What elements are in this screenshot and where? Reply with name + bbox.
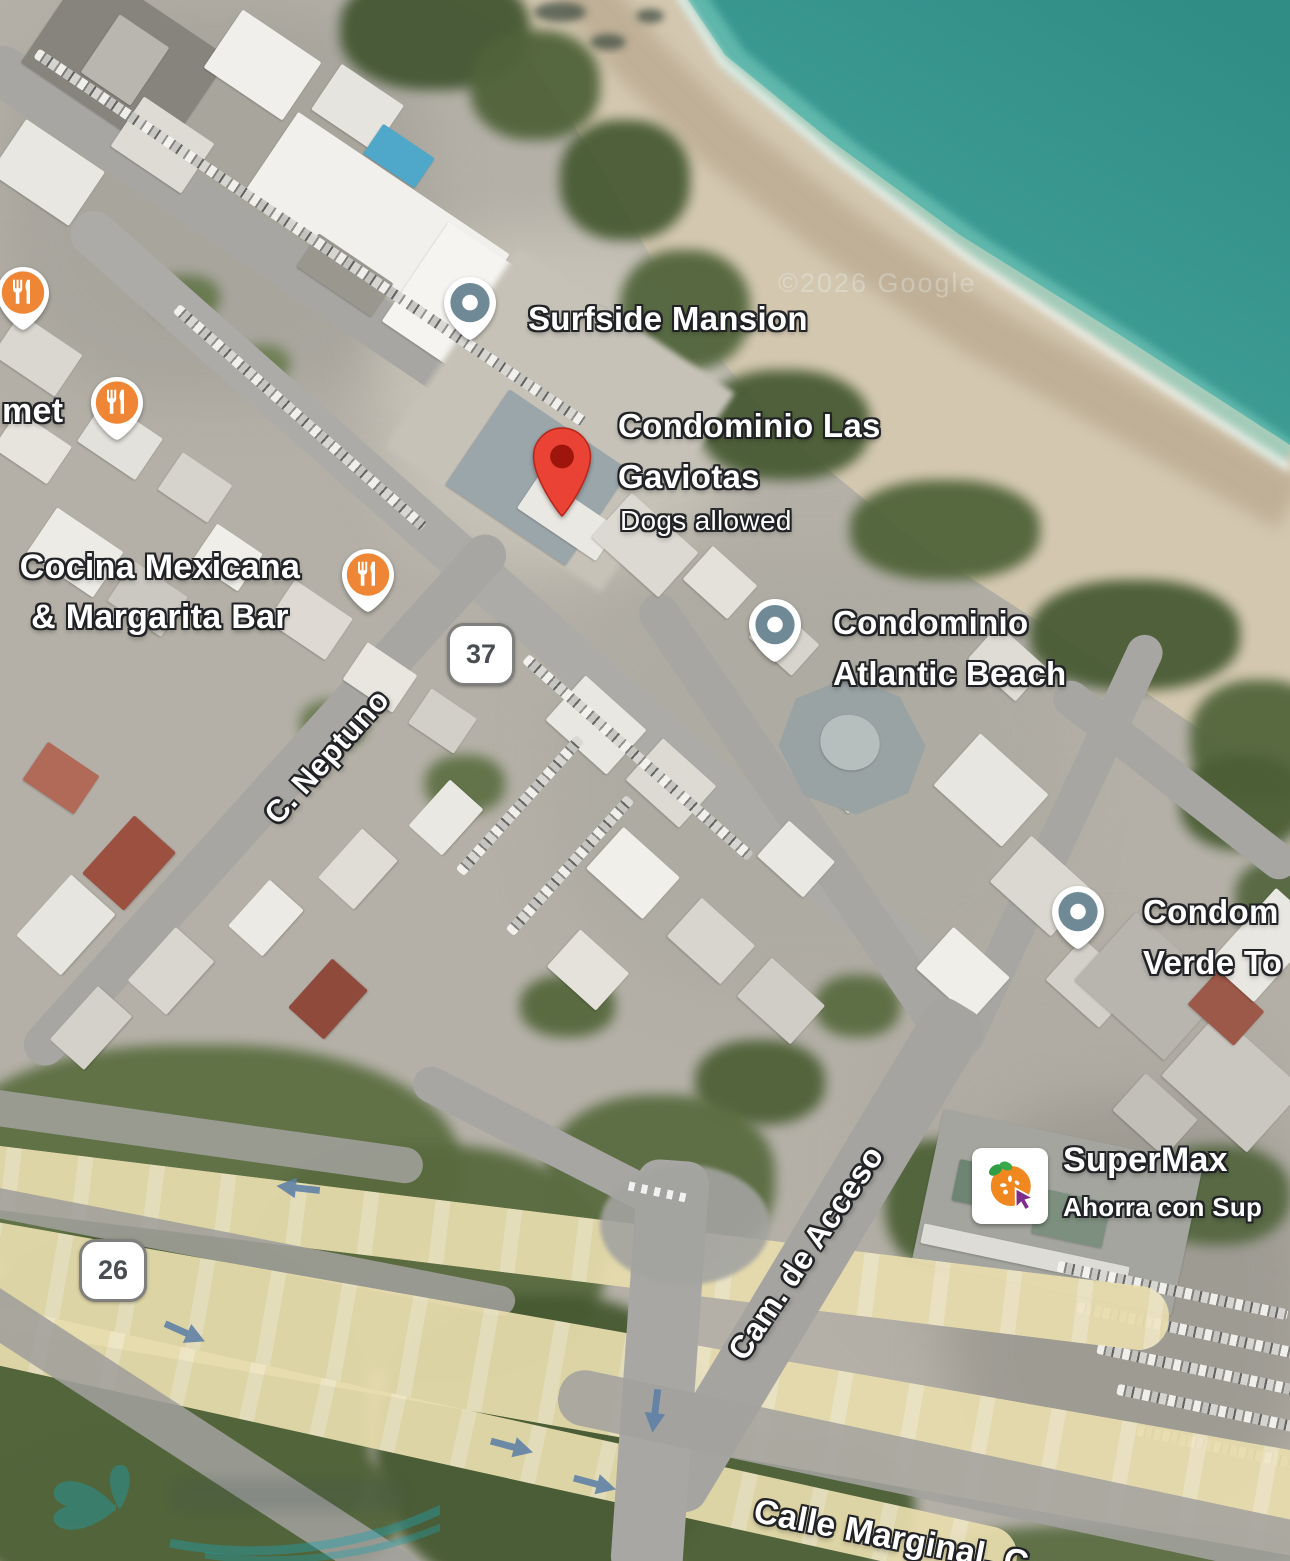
place-marker-icon[interactable]	[1050, 884, 1106, 950]
poi-label-cocina-mexicana[interactable]: Cocina Mexicana & Margarita Bar	[0, 542, 335, 642]
place-marker-icon[interactable]	[747, 597, 803, 663]
poi-label-surfside-mansion[interactable]: Surfside Mansion	[528, 293, 808, 344]
poi-label-gourmet[interactable]: met	[2, 386, 63, 437]
restaurant-icon[interactable]	[89, 375, 145, 441]
route-shield-26: 26	[79, 1239, 147, 1302]
route-shield-26-label: 26	[98, 1255, 128, 1286]
satellite-map[interactable]: ©2026 Google 37 26 C. Neptuno Cam. de Ac…	[0, 0, 1290, 1561]
poi-label-verde-tower[interactable]: Condom Verde To	[1143, 886, 1282, 988]
watermark-logo	[20, 1455, 440, 1561]
poi-sublabel-supermax: Ahorra con Sup	[1063, 1192, 1262, 1223]
destination-pin-icon[interactable]	[531, 425, 593, 519]
supermax-logo-icon[interactable]	[972, 1148, 1048, 1224]
traffic-arrow-icon	[273, 1173, 321, 1204]
traffic-arrow-icon	[639, 1388, 670, 1437]
restaurant-icon[interactable]	[340, 547, 396, 613]
place-marker-icon[interactable]	[442, 275, 498, 341]
poi-label-supermax[interactable]: SuperMax	[1063, 1135, 1228, 1186]
route-shield-37-label: 37	[466, 639, 496, 670]
poi-sublabel-las-gaviotas: Dogs allowed	[620, 505, 792, 537]
poi-label-atlantic-beach[interactable]: Condominio Atlantic Beach	[833, 597, 1066, 699]
restaurant-icon[interactable]	[0, 265, 51, 331]
poi-label-las-gaviotas[interactable]: Condominio Las Gaviotas	[618, 400, 881, 502]
route-shield-37: 37	[447, 623, 515, 686]
